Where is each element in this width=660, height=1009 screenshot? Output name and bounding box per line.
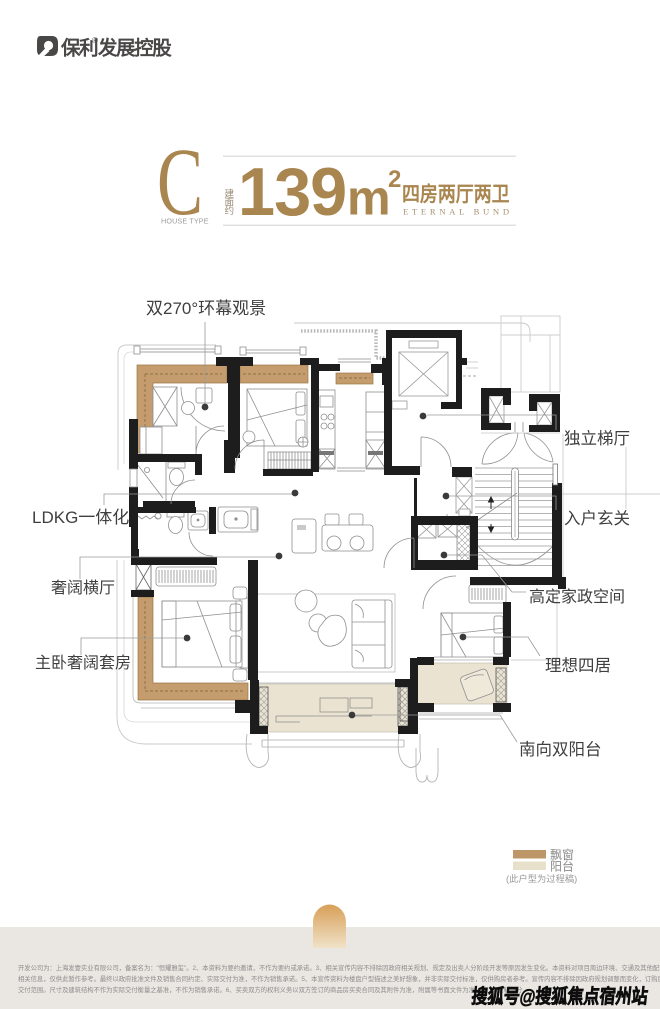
svg-text:约: 约 [225,205,235,217]
svg-text:发展控股: 发展控股 [97,37,172,60]
svg-text:交付范围。尺寸及建筑结构不作为实际交付衡量之基准，不作为销售: 交付范围。尺寸及建筑结构不作为实际交付衡量之基准，不作为销售承诺。6、买卖双方的… [18,985,523,994]
svg-text:LDKG一体化: LDKG一体化 [32,508,129,527]
svg-text:高定家政空间: 高定家政空间 [529,588,625,606]
svg-text:m: m [347,172,391,226]
svg-text:(此户型为过程稿): (此户型为过程稿) [506,873,577,884]
svg-text:搜狐号@搜狐焦点宿州站: 搜狐号@搜狐焦点宿州站 [470,985,649,1008]
svg-text:开发公司为：上海发壹实业有限公司，备案名为："恒耀雅玺"。2: 开发公司为：上海发壹实业有限公司，备案名为："恒耀雅玺"。2、本资料为要约邀请，… [18,963,660,972]
svg-text:南向双阳台: 南向双阳台 [519,740,602,759]
svg-text:阳台: 阳台 [550,859,574,874]
svg-text:2: 2 [388,166,401,193]
svg-text:HOUSE TYPE: HOUSE TYPE [161,217,209,226]
svg-text:139: 139 [238,154,346,230]
svg-text:理想四居: 理想四居 [545,656,611,675]
svg-text:主卧奢阔套房: 主卧奢阔套房 [35,654,131,672]
svg-text:奢阔横厅: 奢阔横厅 [51,579,115,597]
svg-text:独立梯厅: 独立梯厅 [564,429,630,448]
svg-text:入户玄关: 入户玄关 [564,509,630,528]
svg-text:ETERNAL BUND: ETERNAL BUND [403,207,513,217]
svg-text:双270°环幕观景: 双270°环幕观景 [146,299,266,318]
svg-text:相关信息，仅供此暂作参考。最终以政府批准文件及销售合同约定、: 相关信息，仅供此暂作参考。最终以政府批准文件及销售合同约定、实际交付为准，不作为… [18,974,660,983]
svg-text:四房两厅两卫: 四房两厅两卫 [402,182,510,206]
